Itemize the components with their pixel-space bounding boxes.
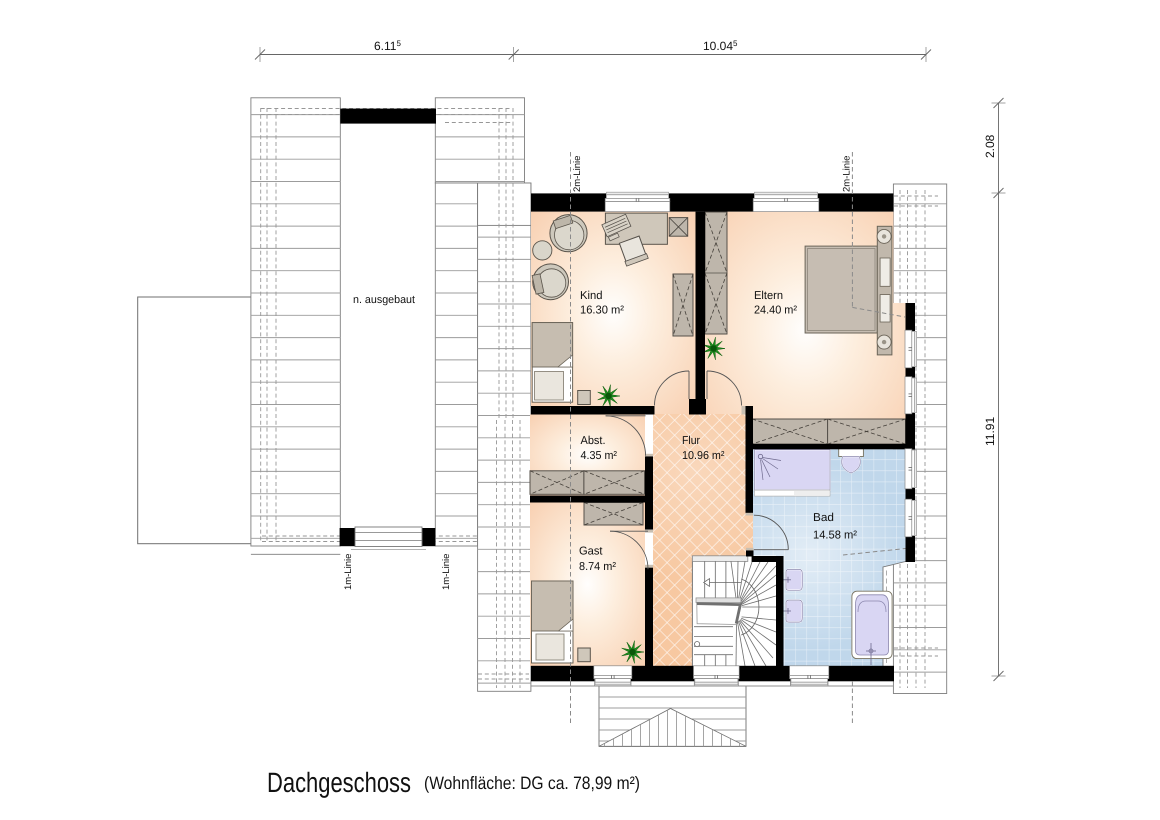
svg-text:10.96 m²: 10.96 m²: [682, 450, 725, 462]
svg-text:1m-Linie: 1m-Linie: [441, 554, 452, 590]
svg-text:2m-Linie: 2m-Linie: [842, 156, 853, 192]
svg-text:Abst.: Abst.: [581, 435, 606, 447]
svg-text:11.91: 11.91: [983, 417, 997, 446]
svg-text:Gast: Gast: [579, 546, 603, 558]
svg-text:24.40 m²: 24.40 m²: [754, 305, 797, 317]
svg-text:2m-Linie: 2m-Linie: [572, 156, 583, 192]
svg-text:(Wohnfläche: DG ca. 78,99 m²): (Wohnfläche: DG ca. 78,99 m²): [424, 773, 640, 793]
svg-text:16.30 m²: 16.30 m²: [580, 305, 624, 317]
svg-text:Eltern: Eltern: [754, 290, 783, 302]
svg-text:Dachgeschoss: Dachgeschoss: [267, 767, 411, 798]
svg-text:Kind: Kind: [580, 290, 603, 302]
svg-text:1m-Linie: 1m-Linie: [343, 554, 354, 590]
svg-text:2.08: 2.08: [983, 134, 997, 158]
svg-text:10.045: 10.045: [703, 39, 738, 53]
svg-text:4.35 m²: 4.35 m²: [581, 450, 618, 462]
svg-text:8.74 m²: 8.74 m²: [579, 561, 616, 573]
svg-text:n. ausgebaut: n. ausgebaut: [353, 294, 415, 306]
svg-text:14.58 m²: 14.58 m²: [813, 530, 857, 542]
svg-text:Bad: Bad: [813, 512, 834, 524]
svg-text:Flur: Flur: [682, 435, 700, 447]
